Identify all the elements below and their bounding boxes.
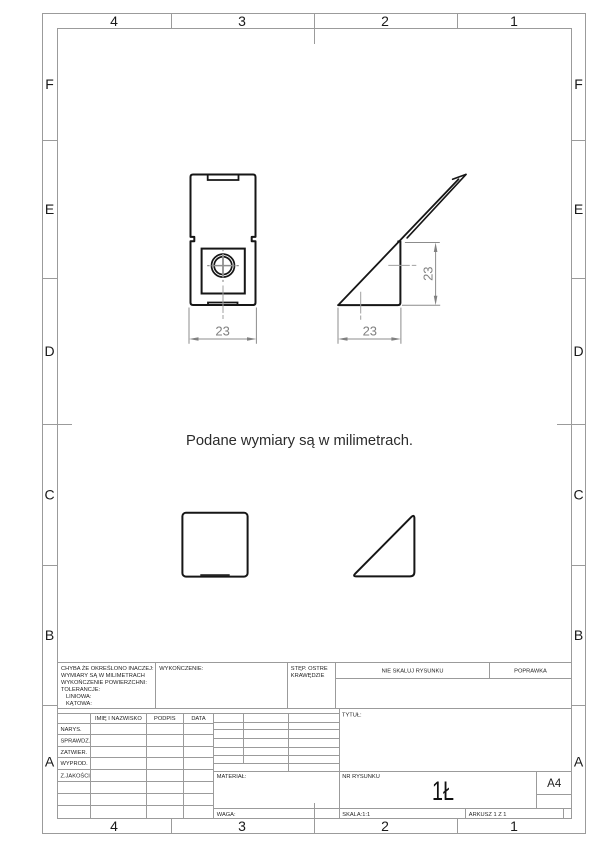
svg-text:ARKUSZ 1 Z 1: ARKUSZ 1 Z 1 — [469, 812, 507, 818]
svg-text:23: 23 — [420, 266, 435, 280]
svg-text:WAGA:: WAGA: — [217, 812, 236, 818]
svg-text:Podane wymiary są w milimetrac: Podane wymiary są w milimetrach. — [186, 433, 413, 449]
svg-text:DATA: DATA — [191, 716, 206, 722]
svg-text:POPRAWKA: POPRAWKA — [514, 668, 547, 674]
svg-text:WYKOŃCZENIE:: WYKOŃCZENIE: — [159, 665, 203, 672]
svg-text:KĄTOWA:: KĄTOWA: — [66, 701, 92, 707]
svg-text:WYKOŃCZENIE POWIERZCHNI:: WYKOŃCZENIE POWIERZCHNI: — [61, 679, 147, 686]
svg-text:23: 23 — [363, 324, 377, 339]
svg-text:4: 4 — [110, 13, 118, 29]
svg-text:3: 3 — [238, 818, 246, 834]
svg-text:B: B — [45, 627, 54, 643]
svg-text:C: C — [573, 487, 583, 503]
svg-text:CHYBA ŻE OKREŚLONO INACZEJ:: CHYBA ŻE OKREŚLONO INACZEJ: — [61, 664, 154, 672]
svg-text:4: 4 — [110, 818, 118, 834]
svg-text:A4: A4 — [547, 778, 562, 790]
svg-text:D: D — [573, 343, 583, 359]
svg-text:3: 3 — [238, 13, 246, 29]
svg-text:2: 2 — [381, 13, 389, 29]
svg-text:WYPROD.: WYPROD. — [61, 761, 89, 767]
svg-text:D: D — [44, 343, 54, 359]
svg-text:PODPIS: PODPIS — [154, 716, 176, 722]
svg-text:SKALA:1:1: SKALA:1:1 — [342, 812, 370, 818]
svg-text:NIE SKALUJ RYSUNKU: NIE SKALUJ RYSUNKU — [382, 668, 444, 674]
svg-text:B: B — [574, 627, 583, 643]
svg-text:2: 2 — [381, 818, 389, 834]
svg-text:ZATWIER.: ZATWIER. — [61, 750, 88, 756]
svg-text:WYMIARY SĄ W MILIMETRACH: WYMIARY SĄ W MILIMETRACH — [61, 673, 145, 679]
svg-text:1: 1 — [510, 13, 518, 29]
svg-text:STĘP. OSTRE: STĘP. OSTRE — [291, 666, 328, 672]
svg-text:KRAWĘDZIE: KRAWĘDZIE — [291, 673, 325, 679]
svg-text:Z.JAKOŚCI: Z.JAKOŚCI — [61, 771, 91, 779]
svg-text:NARYS.: NARYS. — [61, 727, 82, 733]
svg-text:E: E — [45, 201, 54, 217]
svg-text:A: A — [45, 754, 55, 770]
svg-text:F: F — [45, 76, 54, 92]
svg-text:TOLERANCJE:: TOLERANCJE: — [61, 687, 101, 693]
svg-text:NR RYSUNKU: NR RYSUNKU — [342, 774, 380, 780]
svg-text:C: C — [44, 487, 54, 503]
svg-text:1: 1 — [510, 818, 518, 834]
svg-text:MATERIAŁ:: MATERIAŁ: — [217, 774, 247, 780]
svg-text:F: F — [574, 76, 583, 92]
svg-text:IMIĘ I NAZWISKO: IMIĘ I NAZWISKO — [95, 716, 142, 722]
svg-text:TYTUŁ:: TYTUŁ: — [342, 713, 362, 719]
svg-text:SPRAWDZ.: SPRAWDZ. — [61, 738, 91, 744]
svg-text:A: A — [574, 754, 584, 770]
svg-text:1Ł: 1Ł — [432, 776, 454, 806]
svg-text:E: E — [574, 201, 583, 217]
svg-text:LINIOWA:: LINIOWA: — [66, 694, 92, 700]
svg-text:23: 23 — [215, 324, 229, 339]
